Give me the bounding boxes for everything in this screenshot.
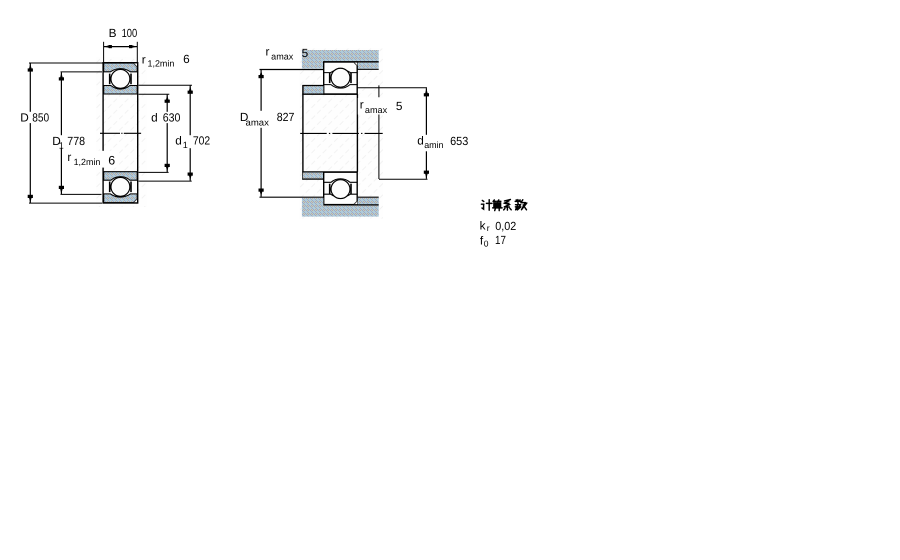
- svg-text:1: 1: [183, 140, 188, 150]
- svg-text:6: 6: [183, 52, 190, 66]
- svg-text:amax: amax: [365, 105, 388, 115]
- svg-text:B: B: [109, 26, 117, 40]
- svg-text:r: r: [487, 223, 490, 233]
- svg-text:653: 653: [450, 134, 469, 148]
- svg-text:5: 5: [302, 46, 309, 60]
- svg-text:r: r: [142, 52, 146, 66]
- svg-text:r: r: [266, 44, 270, 58]
- svg-text:D: D: [20, 111, 29, 125]
- svg-text:0,02: 0,02: [495, 219, 516, 233]
- svg-text:778: 778: [67, 134, 85, 148]
- svg-text:r: r: [67, 150, 71, 164]
- svg-text:5: 5: [396, 99, 403, 113]
- svg-text:amin: amin: [424, 140, 443, 150]
- svg-text:1: 1: [59, 140, 64, 150]
- svg-text:17: 17: [495, 233, 506, 247]
- svg-text:d: d: [151, 110, 158, 124]
- svg-text:827: 827: [277, 110, 295, 124]
- svg-text:6: 6: [108, 153, 115, 167]
- svg-text:100: 100: [122, 26, 138, 40]
- svg-text:r: r: [360, 98, 364, 112]
- svg-text:0: 0: [484, 238, 489, 248]
- svg-text:d: d: [175, 134, 182, 148]
- svg-text:1,2min: 1,2min: [74, 157, 101, 167]
- svg-text:d: d: [417, 134, 424, 148]
- svg-text:850: 850: [32, 111, 49, 125]
- svg-text:amax: amax: [271, 51, 294, 61]
- svg-text:1,2min: 1,2min: [148, 58, 175, 68]
- svg-text:k: k: [480, 219, 486, 233]
- svg-text:amax: amax: [246, 118, 270, 128]
- svg-text:630: 630: [163, 110, 181, 124]
- svg-text:702: 702: [193, 134, 210, 148]
